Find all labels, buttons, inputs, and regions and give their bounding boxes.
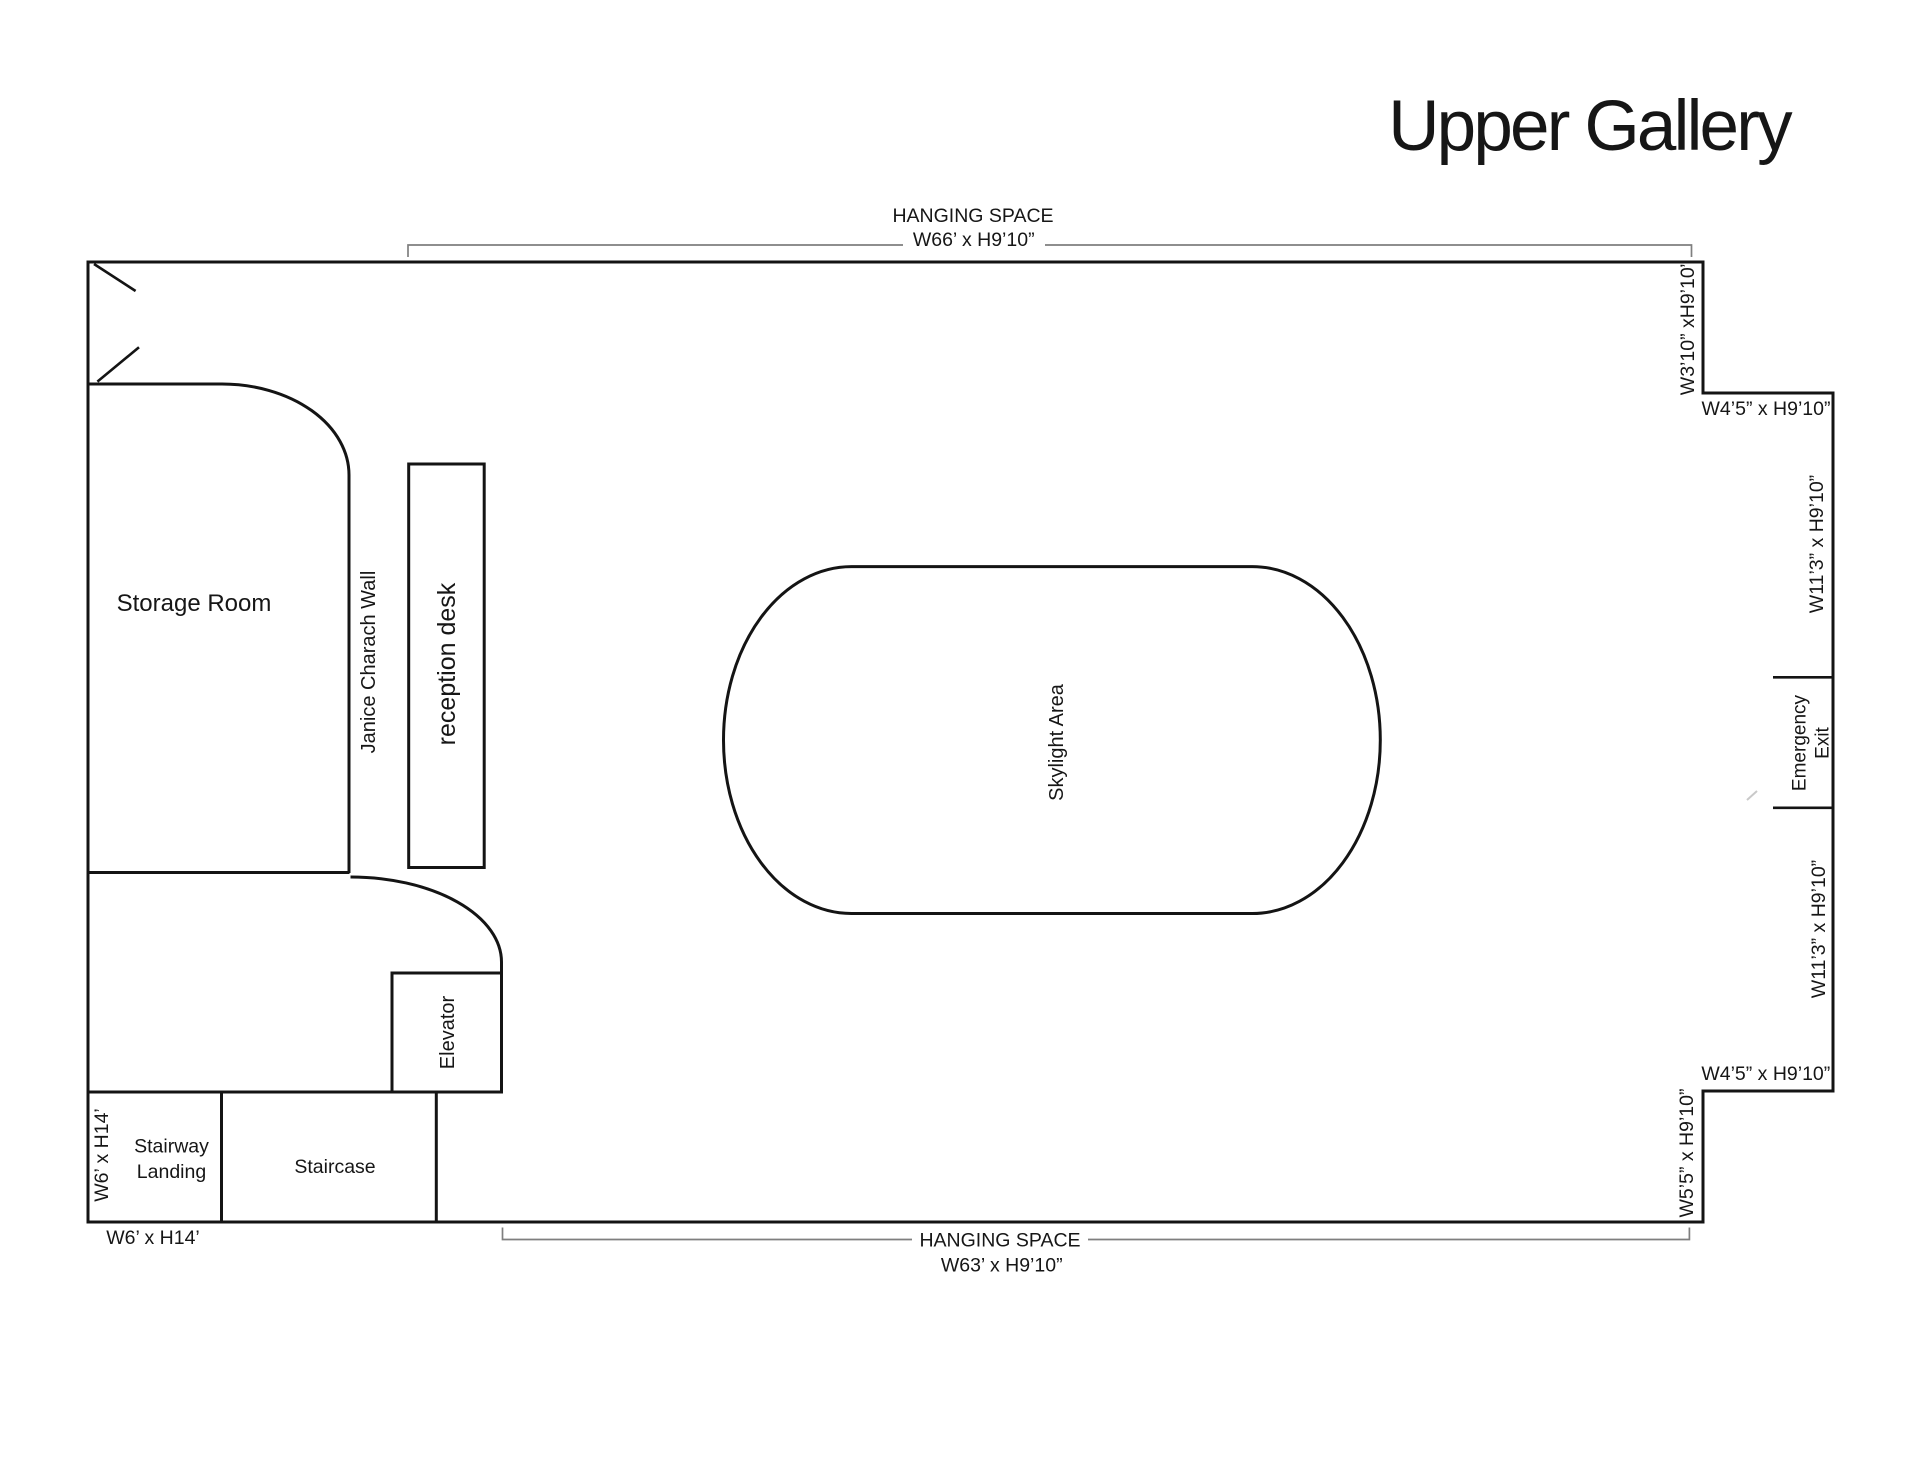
svg-text:W63’ x H9’10”: W63’ x H9’10” [941,1255,1063,1277]
svg-text:W6’ x H14’: W6’ x H14’ [91,1108,113,1202]
svg-text:W6’ x H14’: W6’ x H14’ [106,1227,200,1249]
svg-text:W3’10” xH9’10”: W3’10” xH9’10” [1677,261,1699,395]
svg-text:Skylight Area: Skylight Area [1046,683,1068,801]
svg-text:W5’5” x H9’10”: W5’5” x H9’10” [1676,1089,1698,1218]
svg-text:Landing: Landing [137,1161,206,1183]
svg-text:Storage Room: Storage Room [117,590,272,617]
svg-text:reception desk: reception desk [433,582,461,745]
svg-text:Staircase: Staircase [294,1156,375,1178]
svg-text:W11’3” x H9’10”: W11’3” x H9’10” [1806,475,1828,613]
svg-text:Elevator: Elevator [437,995,459,1069]
svg-text:Upper Gallery: Upper Gallery [1388,87,1793,166]
svg-text:W66’ x H9’10”: W66’ x H9’10” [913,229,1035,251]
svg-text:W11’3” x H9’10”: W11’3” x H9’10” [1808,860,1830,998]
svg-text:HANGING SPACE: HANGING SPACE [892,205,1053,227]
svg-text:W4’5” x H9’10”: W4’5” x H9’10” [1701,1063,1830,1085]
svg-text:Exit: Exit [1813,726,1834,758]
svg-text:Stairway: Stairway [134,1136,209,1158]
svg-text:Emergency: Emergency [1790,694,1811,791]
svg-text:W4’5” x H9’10”: W4’5” x H9’10” [1702,398,1831,420]
svg-text:HANGING SPACE: HANGING SPACE [919,1230,1080,1252]
svg-text:Janice Charach Wall: Janice Charach Wall [358,571,380,754]
